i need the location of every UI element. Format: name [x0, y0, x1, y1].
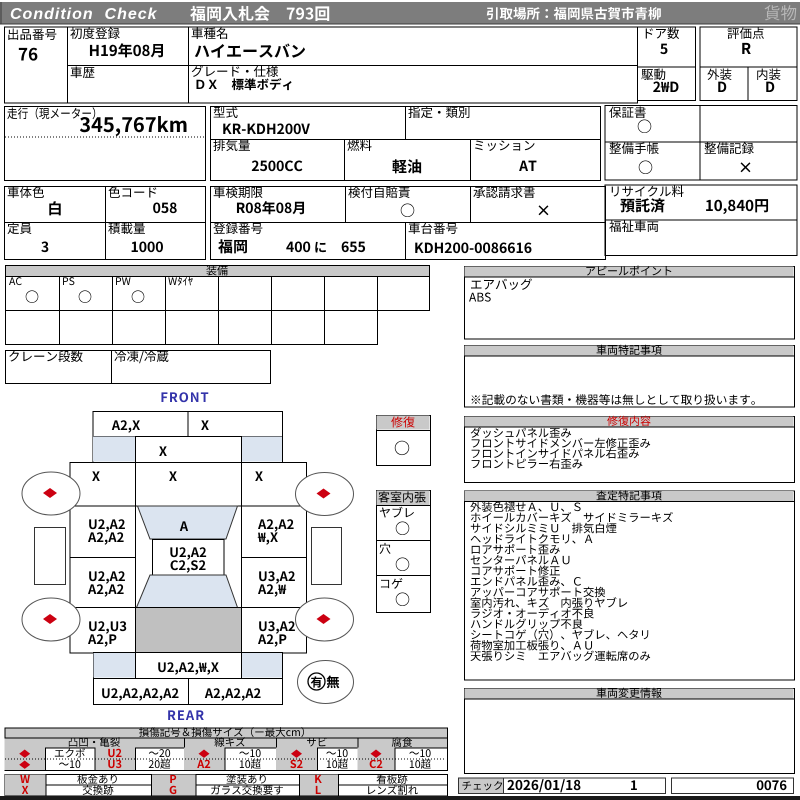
svg-text:Condition Check: Condition Check — [10, 6, 158, 23]
